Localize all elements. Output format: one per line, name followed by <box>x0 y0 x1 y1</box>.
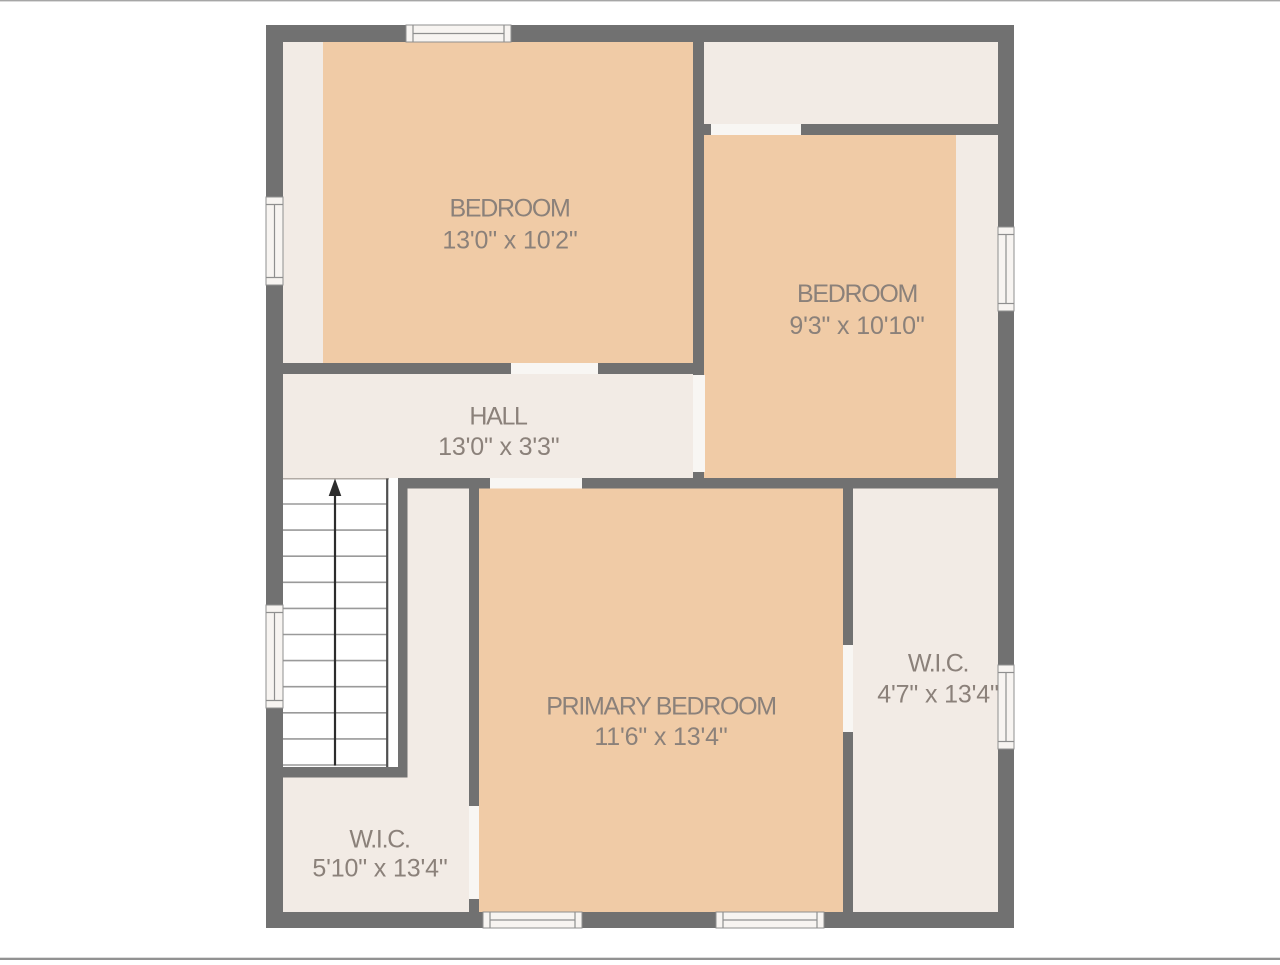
svg-text:9'3" x 10'10": 9'3" x 10'10" <box>789 312 924 340</box>
svg-text:HALL: HALL <box>469 403 528 431</box>
svg-text:W.I.C.: W.I.C. <box>908 650 968 678</box>
svg-text:11'6" x 13'4": 11'6" x 13'4" <box>594 723 727 751</box>
svg-text:5'10" x 13'4": 5'10" x 13'4" <box>312 855 447 883</box>
svg-text:13'0" x 10'2": 13'0" x 10'2" <box>442 227 577 255</box>
svg-text:PRIMARY BEDROOM: PRIMARY BEDROOM <box>546 693 776 721</box>
svg-text:4'7" x 13'4": 4'7" x 13'4" <box>877 681 998 709</box>
svg-text:13'0" x 3'3": 13'0" x 3'3" <box>438 433 559 461</box>
svg-text:BEDROOM: BEDROOM <box>797 280 917 308</box>
svg-text:W.I.C.: W.I.C. <box>349 826 409 854</box>
svg-text:BEDROOM: BEDROOM <box>449 195 569 223</box>
